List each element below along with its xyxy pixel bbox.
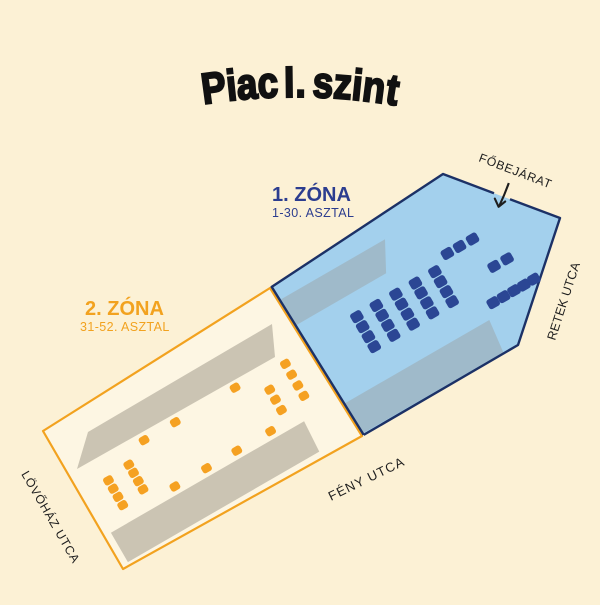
svg-text:31-52. ASZTAL: 31-52. ASZTAL <box>80 320 170 334</box>
svg-text:.: . <box>295 58 306 107</box>
svg-text:RETEK UTCA: RETEK UTCA <box>545 260 584 342</box>
svg-text:s: s <box>312 58 335 107</box>
svg-text:I: I <box>284 58 295 107</box>
svg-text:c: c <box>256 58 279 107</box>
svg-text:FŐBEJÁRAT: FŐBEJÁRAT <box>477 150 554 192</box>
svg-text:1. ZÓNA: 1. ZÓNA <box>272 182 351 206</box>
svg-text:1-30. ASZTAL: 1-30. ASZTAL <box>272 206 354 220</box>
svg-text:2. ZÓNA: 2. ZÓNA <box>85 296 164 320</box>
svg-text:FÉNY UTCA: FÉNY UTCA <box>326 454 407 504</box>
